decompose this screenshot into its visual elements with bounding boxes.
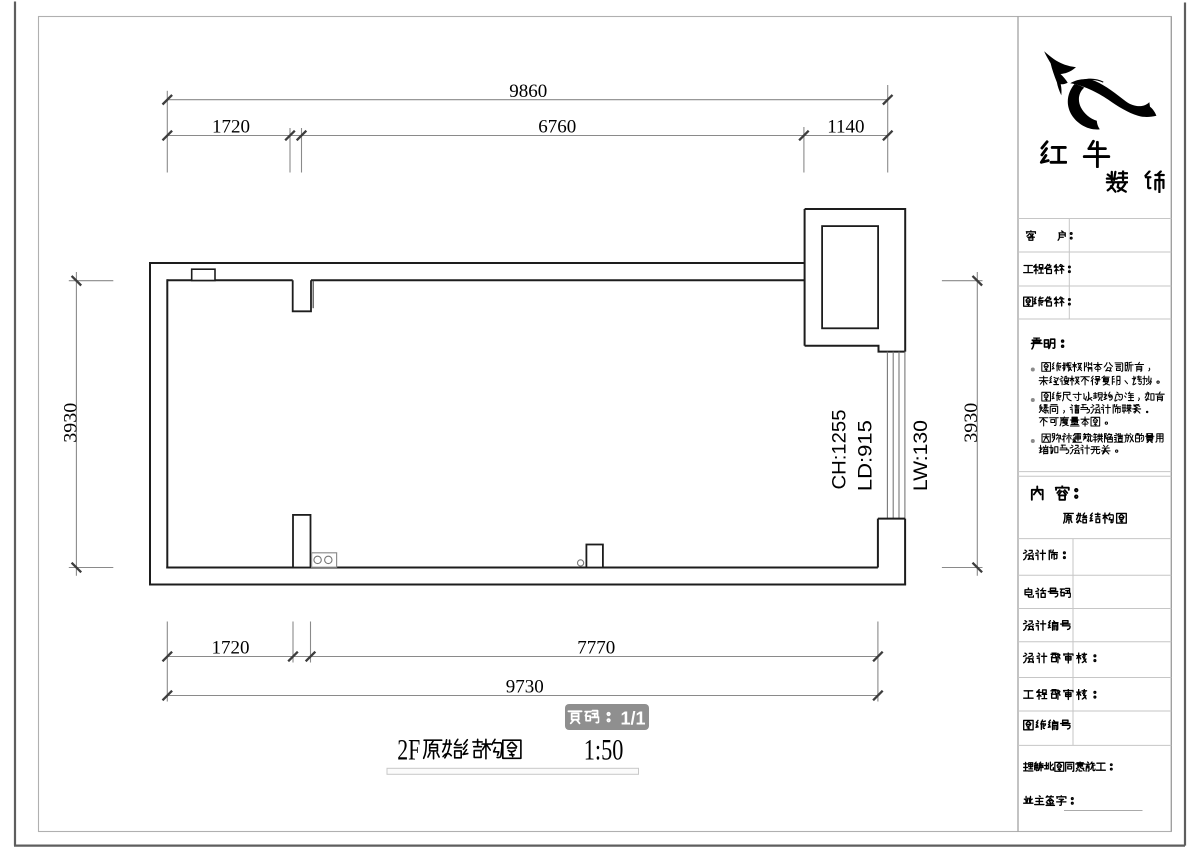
svg-text:3930: 3930 — [961, 403, 982, 443]
svg-text:LD:915: LD:915 — [855, 420, 876, 491]
svg-text:1720: 1720 — [212, 117, 250, 138]
svg-text:3930: 3930 — [60, 403, 81, 443]
svg-text:9860: 9860 — [509, 81, 547, 102]
svg-text:1140: 1140 — [827, 117, 864, 138]
svg-text:6760: 6760 — [538, 117, 576, 138]
svg-text:LW:130: LW:130 — [911, 420, 932, 491]
svg-text:2F: 2F — [397, 733, 420, 766]
svg-text:9730: 9730 — [506, 677, 544, 698]
svg-text:1720: 1720 — [212, 638, 250, 659]
svg-text:7770: 7770 — [577, 638, 615, 659]
svg-text:CH:1255: CH:1255 — [829, 410, 850, 490]
svg-text:1:50: 1:50 — [584, 733, 624, 766]
svg-text:1/1: 1/1 — [621, 709, 646, 729]
